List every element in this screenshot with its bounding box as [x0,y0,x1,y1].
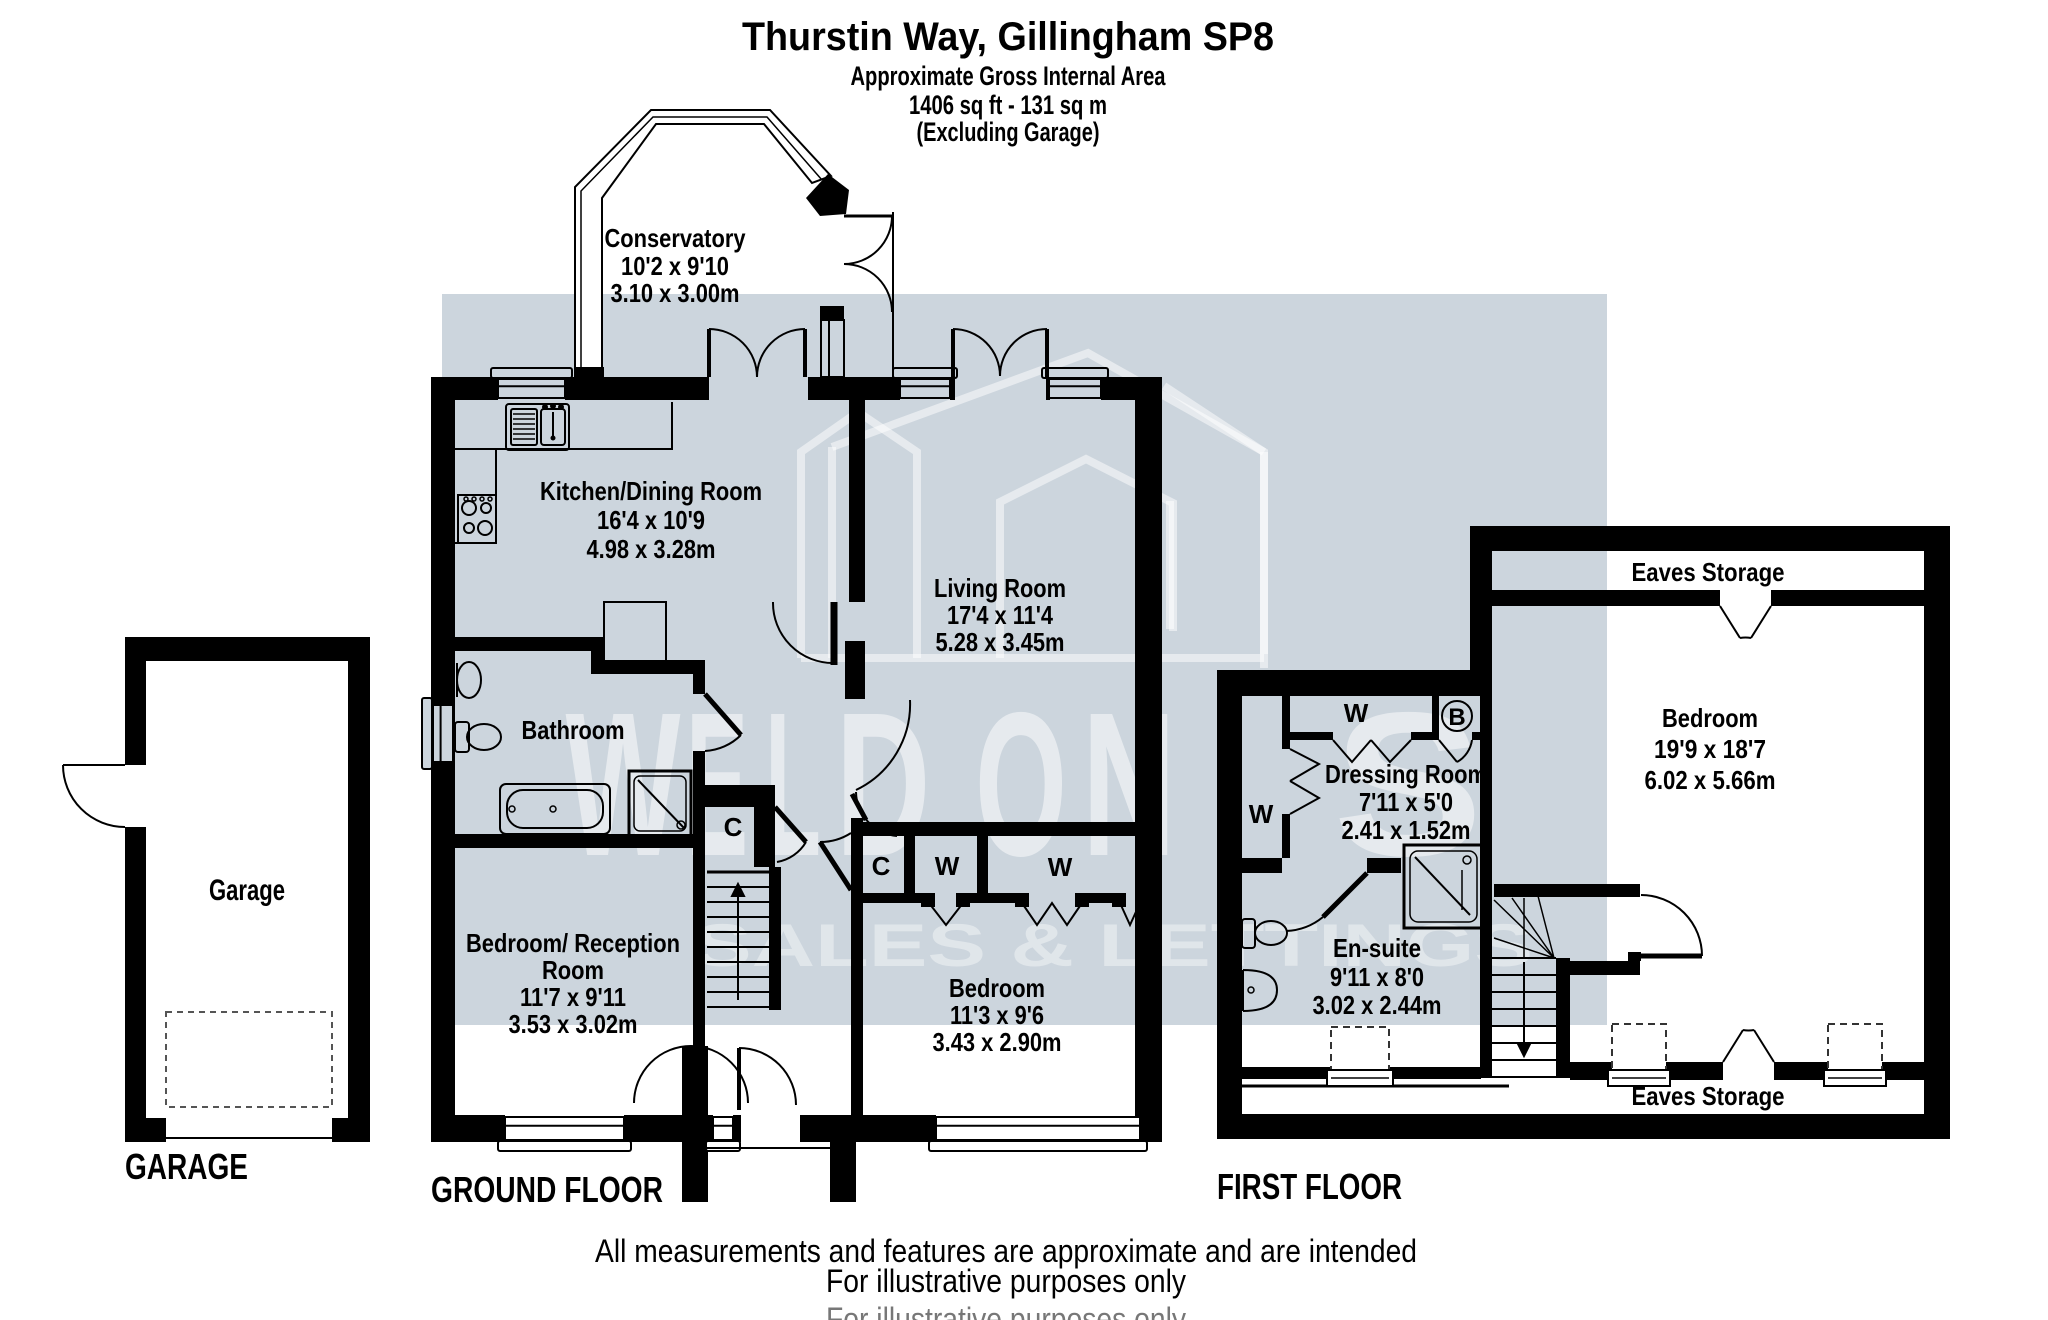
svg-text:Approximate Gross Internal Are: Approximate Gross Internal Area [851,61,1167,91]
svg-text:3.43 x 2.90m: 3.43 x 2.90m [933,1027,1062,1057]
svg-text:W: W [1344,698,1369,728]
svg-text:B: B [1448,704,1465,731]
svg-text:For illustrative purposes only: For illustrative purposes only [826,1301,1186,1320]
svg-text:Bathroom: Bathroom [522,715,625,745]
svg-text:6.02 x 5.66m: 6.02 x 5.66m [1645,765,1776,795]
svg-text:11'7 x 9'11: 11'7 x 9'11 [520,982,626,1012]
svg-text:GROUND FLOOR: GROUND FLOOR [431,1169,663,1210]
svg-text:11'3 x 9'6: 11'3 x 9'6 [950,1000,1044,1030]
svg-text:3.53 x 3.02m: 3.53 x 3.02m [509,1009,638,1039]
svg-text:3.10 x 3.00m: 3.10 x 3.00m [611,278,740,308]
svg-text:9'11 x 8'0: 9'11 x 8'0 [1330,962,1424,992]
svg-text:Kitchen/Dining Room: Kitchen/Dining Room [540,476,762,506]
svg-text:W: W [935,851,960,881]
svg-text:Garage: Garage [209,874,285,907]
svg-text:7'11 x 5'0: 7'11 x 5'0 [1359,787,1453,817]
svg-text:3.02 x 2.44m: 3.02 x 2.44m [1313,990,1442,1020]
svg-text:Dressing Room: Dressing Room [1325,759,1487,789]
svg-text:Thurstin Way, Gillingham SP8: Thurstin Way, Gillingham SP8 [742,15,1274,59]
svg-text:Bedroom/ Reception: Bedroom/ Reception [466,928,680,958]
svg-text:(Excluding Garage): (Excluding Garage) [917,117,1100,147]
svg-text:En-suite: En-suite [1333,933,1421,963]
svg-text:C: C [872,851,891,881]
svg-text:GARAGE: GARAGE [125,1146,248,1187]
svg-text:2.41 x 1.52m: 2.41 x 1.52m [1342,815,1471,845]
svg-text:Room: Room [542,955,604,985]
svg-text:5.28 x 3.45m: 5.28 x 3.45m [936,627,1065,657]
svg-text:W: W [1048,852,1073,882]
svg-text:For illustrative purposes only: For illustrative purposes only [826,1263,1186,1299]
svg-text:1406 sq ft - 131 sq m: 1406 sq ft - 131 sq m [909,90,1107,120]
svg-text:10'2 x 9'10: 10'2 x 9'10 [621,251,729,281]
svg-text:Living Room: Living Room [934,573,1066,603]
svg-text:17'4 x 11'4: 17'4 x 11'4 [947,600,1053,630]
svg-text:Eaves Storage: Eaves Storage [1632,1081,1785,1111]
svg-text:C: C [724,812,743,842]
svg-text:Conservatory: Conservatory [605,223,746,253]
svg-text:Eaves Storage: Eaves Storage [1632,557,1785,587]
svg-text:FIRST FLOOR: FIRST FLOOR [1217,1166,1402,1207]
svg-text:Bedroom: Bedroom [1662,703,1758,733]
svg-text:19'9 x 18'7: 19'9 x 18'7 [1654,734,1766,764]
svg-text:Bedroom: Bedroom [949,973,1045,1003]
svg-text:16'4 x 10'9: 16'4 x 10'9 [597,505,705,535]
svg-text:W: W [1249,799,1274,829]
svg-text:4.98 x 3.28m: 4.98 x 3.28m [587,534,716,564]
